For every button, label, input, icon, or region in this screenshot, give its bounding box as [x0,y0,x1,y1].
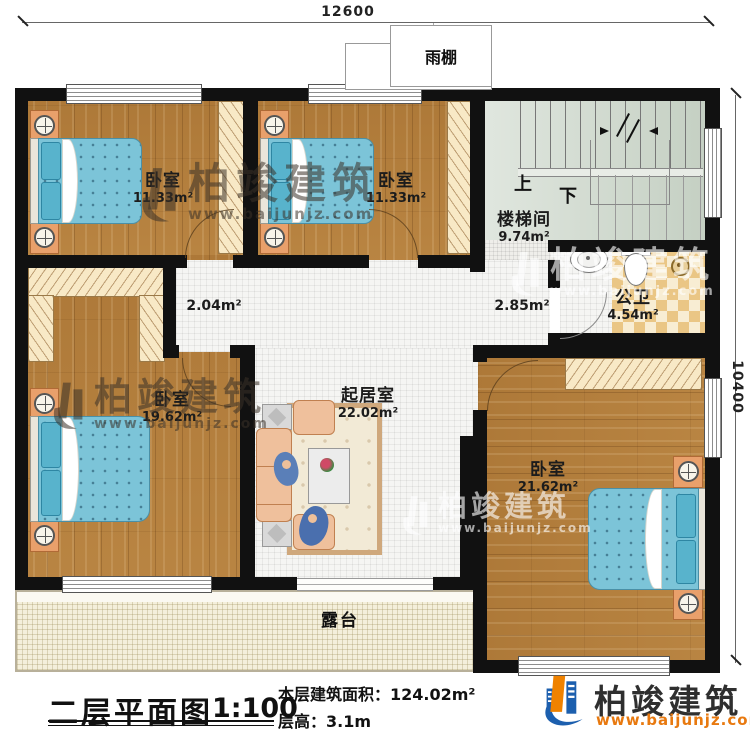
table-flower-icon [320,458,334,472]
side-table [262,404,292,430]
floor-height-text: 层高：3.1m [278,708,371,732]
wall-bedroom-3-living [240,345,255,590]
pillow [676,540,696,584]
wall-corridor-left [163,260,176,352]
room-label-bathroom: 公卫 4.54m² [607,283,658,323]
company-website: www.baijunjz.com [596,711,750,729]
wall-bedroom-4-top [473,345,705,358]
pillow [271,182,291,220]
wall-bedroom-4-left [473,345,487,362]
building-area-text: 本层建筑面积：124.02m² [278,681,475,705]
window-bedroom-4-right [704,378,722,458]
room-label-bedroom-2: 卧室 11.33m² [366,166,426,206]
closet-right-bedroom-3 [139,295,165,362]
dimension-line-top [22,22,710,23]
dimension-tick [730,87,741,98]
lamp-icon [264,227,285,248]
lamp-icon [34,393,55,414]
pillow [41,470,61,516]
dimension-tick [703,15,714,26]
room-label-bedroom-1: 卧室 11.33m² [133,166,193,206]
stair-direction-arrow-icon [600,127,609,135]
pillow [271,142,291,180]
canopy-label: 雨棚 [425,44,457,68]
wall-bedroom-3-top [163,345,179,358]
floor-drain-icon [671,257,690,276]
floor-drain-dot [677,263,681,267]
wall-bedroom-2-stairwell [470,88,485,272]
person-head [308,514,317,523]
canopy-label-box: 雨棚 [390,25,492,87]
area-label-hall-2: 2.85m² [494,298,549,314]
wall-bottom [15,577,62,590]
dimension-tick [730,654,741,665]
nightstand [30,222,59,254]
pillow [41,422,61,468]
wall-outer-left [15,88,28,590]
wall-between-bedrooms-1-2 [243,88,258,263]
terrace-deck [15,590,479,672]
lamp-icon [34,115,55,136]
wall-living-right [460,436,473,577]
nightstand [260,222,289,254]
terrace-door-bedroom-3 [62,576,212,593]
dimension-top-value: 12600 [321,4,375,20]
pillow [41,182,61,220]
wall-bedroom-4-left [473,410,487,673]
closet-left-bedroom-3 [28,295,54,362]
nightstand [673,456,703,488]
wall-corridor-top [15,255,187,268]
room-label-living: 起居室 22.02m² [338,381,398,421]
wall-bathroom-left [548,260,560,288]
area-label-hall-1: 2.04m² [186,298,241,314]
coffee-table [308,448,350,504]
lamp-icon [34,227,55,248]
nightstand [673,588,703,620]
room-label-bedroom-3: 卧室 19.62m² [142,385,202,425]
nightstand [30,520,59,552]
wall-corridor-top [418,255,485,268]
pillow [41,142,61,180]
bed-sheet [645,489,662,589]
terrace-door-living [297,578,433,591]
lamp-icon [678,461,699,482]
window-bedroom-1 [66,84,202,104]
company-logo-icon [534,670,588,734]
room-label-bedroom-4: 卧室 21.62m² [518,455,578,495]
lamp-icon [678,593,699,614]
lamp-icon [264,115,285,136]
person-head [282,460,291,469]
stairs-up-label: 上 [514,170,532,196]
dimension-right-value: 10400 [729,360,745,414]
terrace-label: 露台 [321,606,359,631]
closet-top-bedroom-3 [28,266,165,297]
room-label-stairwell: 楼梯间 9.74m² [497,205,551,245]
side-table [262,520,292,547]
pillow [676,494,696,538]
title-underline [48,720,274,726]
wall-corridor-top [233,255,369,268]
armchair [293,400,335,435]
stair-direction-arrow-icon [649,127,658,135]
sink-drain [586,256,590,260]
stair-guide-path [590,140,670,205]
floor-plan: 雨棚 12600 10400 卧室 11.33m² 卧室 11.33m² 楼梯间… [0,0,750,743]
wall-bathroom-top [548,240,705,252]
dimension-tick [17,15,28,26]
wardrobe-bedroom-4 [565,358,702,390]
window-stairwell [704,128,722,218]
stairs-down-label: 下 [559,182,577,208]
lamp-icon [34,525,55,546]
